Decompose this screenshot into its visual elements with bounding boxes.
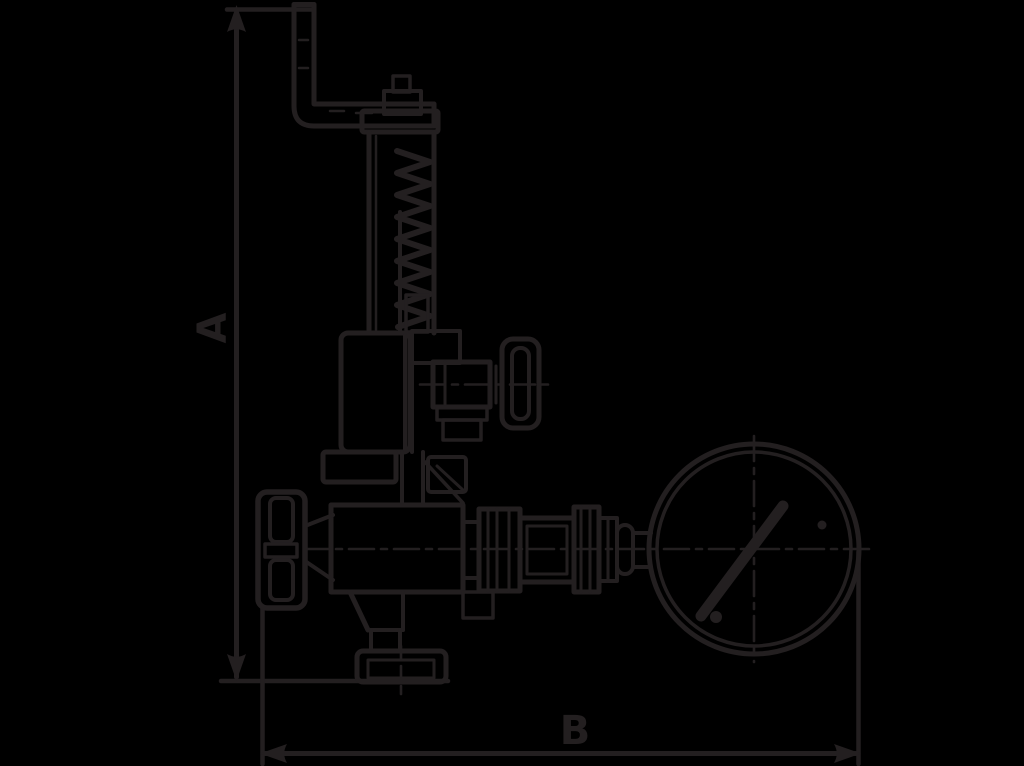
spring-column: [369, 132, 434, 333]
gusset-line: [425, 462, 463, 503]
outline-work: [221, 5, 872, 765]
drawing-canvas: A B: [0, 0, 1024, 766]
gauge-pipe-fittings: [463, 507, 651, 618]
valve-dimensional-drawing: A B: [0, 0, 1024, 766]
body-taper-left: [350, 592, 368, 630]
handwheel-upper-opening: [270, 498, 293, 542]
union-nut: [323, 452, 466, 505]
side-port: [433, 339, 539, 440]
handwheel: [258, 492, 305, 608]
upper-right-block: [412, 331, 460, 363]
union-nut-left: [323, 452, 396, 482]
handwheel-hub: [265, 544, 297, 557]
test-lever: [294, 5, 434, 127]
dimension-a-arrow-bottom: [227, 654, 246, 681]
gauge-needle: [701, 506, 783, 616]
housing-shell: [341, 333, 410, 452]
port-lower-block: [443, 420, 481, 440]
dimension-a-label: A: [190, 312, 236, 343]
drain-block: [463, 592, 493, 618]
gauge-set-pointer-dot: [818, 521, 827, 530]
dimension-b-label: B: [560, 708, 591, 754]
gauge-needle-tail-dot: [710, 611, 722, 623]
handwheel-lower-opening: [270, 560, 293, 600]
